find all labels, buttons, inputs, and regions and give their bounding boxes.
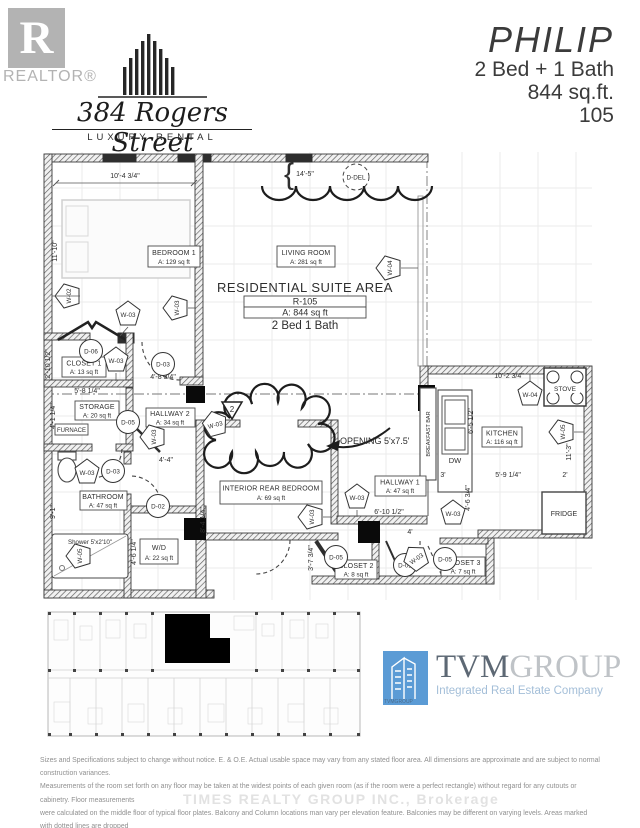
room-label-hallway1: HALLWAY 1 A: 47 sq ft — [375, 476, 426, 496]
svg-text:KITCHEN: KITCHEN — [486, 431, 518, 438]
room-label-storage: STORAGE A: 20 sq ft — [75, 401, 119, 420]
svg-text:D-02: D-02 — [151, 504, 165, 511]
svg-text:RESIDENTIAL SUITE AREA: RESIDENTIAL SUITE AREA — [217, 280, 393, 295]
svg-text:W/D: W/D — [152, 545, 166, 552]
svg-text:BATHROOM: BATHROOM — [82, 494, 124, 501]
svg-text:D-05: D-05 — [121, 420, 135, 427]
svg-text:2': 2' — [562, 472, 567, 479]
svg-text:W-05: W-05 — [77, 548, 84, 563]
svg-text:A: 8 sq ft: A: 8 sq ft — [344, 572, 369, 579]
toilet — [58, 452, 76, 482]
svg-text:R-105: R-105 — [293, 297, 318, 307]
svg-text:D-05: D-05 — [329, 555, 343, 562]
legal-line: Measurements of the room set forth on an… — [40, 780, 600, 806]
room-label-furnace: FURNACE — [55, 424, 88, 435]
svg-text:A: 129 sq ft: A: 129 sq ft — [158, 259, 190, 266]
svg-text:D-03: D-03 — [156, 362, 170, 369]
flyer-page: R REALTOR® 384 Rogers Street LUXURY RENT… — [0, 0, 640, 828]
svg-text:W-03: W-03 — [121, 312, 136, 319]
room-label-kitchen: KITCHEN A: 116 sq ft — [482, 427, 522, 447]
section-marker: 2 — [230, 405, 235, 414]
room-label-bedroom1: BEDROOM 1 A: 129 sq ft — [148, 246, 200, 267]
svg-text:A: 22 sq ft: A: 22 sq ft — [145, 555, 174, 562]
suite-area-block: RESIDENTIAL SUITE AREA R-105 A: 844 sq f… — [217, 280, 393, 332]
tvm-group-logo: TVMGROUP TVMGROUP Integrated Real Estate… — [383, 651, 621, 705]
svg-text:W-03: W-03 — [174, 300, 181, 315]
room-label-wd: W/D A: 22 sq ft — [140, 539, 178, 564]
svg-text:D-03: D-03 — [106, 469, 120, 476]
svg-text:11'-10": 11'-10" — [52, 240, 59, 262]
svg-text:INTERIOR REAR BEDROOM: INTERIOR REAR BEDROOM — [222, 486, 319, 493]
svg-text:9'-1": 9'-1" — [50, 505, 57, 519]
tvm-subtitle: Integrated Real Estate Company — [436, 685, 621, 697]
svg-text:3': 3' — [440, 472, 445, 479]
svg-text:A: 844 sq ft: A: 844 sq ft — [282, 308, 328, 318]
tvm-building-icon: TVMGROUP — [383, 651, 428, 705]
svg-text:8'-4 1/4": 8'-4 1/4" — [200, 507, 207, 533]
svg-text:D-06: D-06 — [84, 349, 98, 356]
svg-text:HALLWAY 1: HALLWAY 1 — [380, 480, 420, 487]
tvm-word-group: GROUP — [509, 649, 621, 685]
svg-text:STORAGE: STORAGE — [79, 404, 115, 411]
svg-text:BEDROOM 1: BEDROOM 1 — [152, 250, 196, 257]
svg-text:10'-4 3/4": 10'-4 3/4" — [110, 173, 140, 180]
svg-text:D-05: D-05 — [438, 557, 452, 564]
fridge-label: FRIDGE — [551, 511, 578, 518]
svg-text:W-03: W-03 — [80, 470, 95, 477]
svg-text:LIVING ROOM: LIVING ROOM — [282, 250, 331, 257]
svg-text:W-05: W-05 — [560, 424, 567, 439]
legal-disclaimer: Sizes and Specifications subject to chan… — [40, 754, 600, 828]
svg-text:A: 281 sq ft: A: 281 sq ft — [290, 259, 322, 266]
dw-label: DW — [449, 456, 462, 465]
opening-note: OPENING 5'x7.5' — [340, 436, 410, 446]
svg-text:4'-6 1/4": 4'-6 1/4" — [131, 539, 138, 565]
tvm-word-tvm: TVM — [436, 649, 509, 685]
svg-text:5'-9 1/4": 5'-9 1/4" — [495, 472, 521, 479]
legal-line: Sizes and Specifications subject to chan… — [40, 754, 600, 780]
room-label-bathroom: BATHROOM A: 47 sq ft — [80, 491, 127, 510]
stove-label: STOVE — [554, 386, 577, 393]
svg-text:FURNACE: FURNACE — [57, 428, 86, 434]
svg-text:3'-7 3/4": 3'-7 3/4" — [308, 545, 315, 571]
svg-text:W-03: W-03 — [309, 509, 316, 524]
svg-text:11'-3": 11'-3" — [566, 443, 573, 461]
svg-text:A: 7 sq ft: A: 7 sq ft — [451, 569, 476, 576]
svg-text:W-03: W-03 — [151, 429, 158, 444]
svg-text:A: 13 sq ft: A: 13 sq ft — [70, 369, 99, 376]
svg-text:A: 47 sq ft: A: 47 sq ft — [89, 503, 118, 510]
svg-text:A: 116 sq ft: A: 116 sq ft — [486, 439, 518, 446]
room-label-living: LIVING ROOM A: 281 sq ft — [277, 246, 335, 267]
room-label-hallway2: HALLWAY 2 A: 34 sq ft — [146, 408, 195, 427]
svg-text:W-04: W-04 — [387, 260, 394, 275]
svg-text:A: 47 sq ft: A: 47 sq ft — [386, 488, 415, 495]
svg-text:W-04: W-04 — [523, 392, 538, 399]
tvm-wordmark: TVMGROUP — [436, 651, 621, 684]
key-plan — [48, 612, 360, 736]
svg-text:14'-5": 14'-5" — [296, 171, 314, 178]
svg-text:2'-10 1/2": 2'-10 1/2" — [45, 349, 52, 379]
svg-text:A: 69 sq ft: A: 69 sq ft — [257, 495, 286, 502]
tvm-icon-caption: TVMGROUP — [384, 699, 413, 705]
svg-text:A: 34 sq ft: A: 34 sq ft — [156, 420, 185, 427]
svg-text:D-DEL: D-DEL — [347, 175, 366, 182]
svg-text:6'-5 1/2": 6'-5 1/2" — [468, 408, 475, 434]
svg-text:W-03: W-03 — [446, 511, 461, 518]
svg-text:W-03: W-03 — [109, 358, 124, 365]
svg-text:A: 20 sq ft: A: 20 sq ft — [83, 413, 112, 420]
svg-text:W-03: W-03 — [350, 495, 365, 502]
svg-text:6'-10 1/2": 6'-10 1/2" — [374, 509, 404, 516]
room-label-rear-bedroom: INTERIOR REAR BEDROOM A: 69 sq ft — [220, 481, 322, 504]
svg-text:4'-1 1/4": 4'-1 1/4" — [50, 403, 57, 429]
svg-text:4': 4' — [407, 529, 412, 536]
svg-text:2 Bed 1 Bath: 2 Bed 1 Bath — [272, 320, 339, 332]
svg-text:10'-2 3/4": 10'-2 3/4" — [494, 373, 524, 380]
svg-text:4'-4": 4'-4" — [159, 457, 173, 464]
svg-text:4'-6 3/4": 4'-6 3/4" — [465, 485, 472, 511]
legal-line: were calculated on the middle floor of t… — [40, 807, 600, 828]
svg-text:5'-8 1/4": 5'-8 1/4" — [74, 388, 100, 395]
breakfast-bar-label: BREAKFAST BAR — [426, 411, 432, 456]
svg-text:HALLWAY 2: HALLWAY 2 — [150, 411, 190, 418]
dim-brace: { — [284, 158, 294, 191]
